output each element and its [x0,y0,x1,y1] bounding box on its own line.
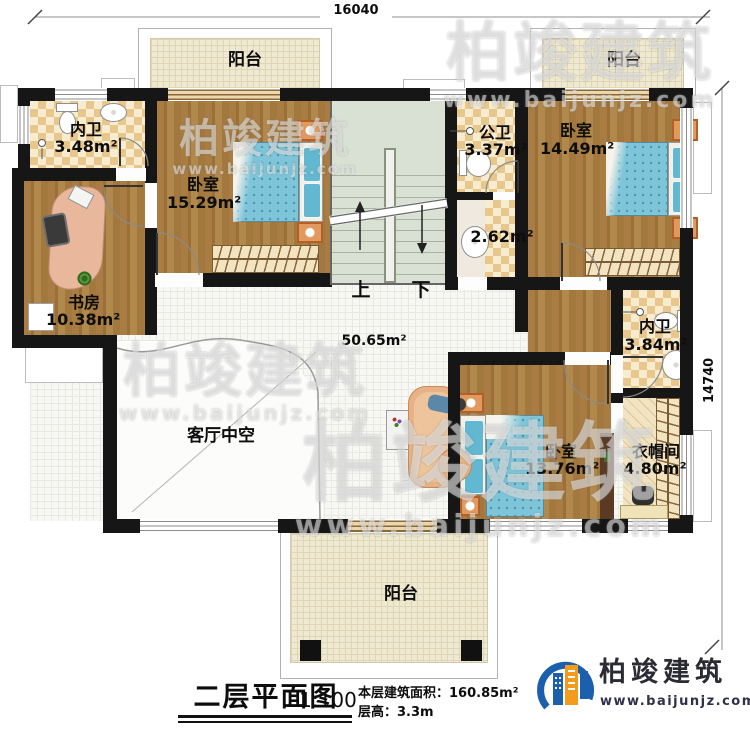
sink-icon [100,103,127,122]
chair [632,486,654,505]
pillow [464,420,484,456]
stair-edge [330,101,332,285]
wall [515,88,528,290]
brand-logo: 柏竣建筑 www.baijunjz.com [535,653,747,725]
door-opening [560,277,607,290]
room-label-balcony-top-right: 阳台 [582,52,666,70]
wall [448,352,460,519]
window [430,88,466,101]
balcony-column [461,640,482,661]
room-area-cloakroom: 4.80m² [619,461,691,478]
room-area-bath-right: 3.84m² [620,337,692,354]
wall [611,388,693,398]
room-area-bath-top-left: 3.48m² [48,139,124,156]
room-area-bedroom-top-left: 15.29m² [167,195,239,212]
window [18,106,30,144]
pillow [303,147,321,182]
dresser-desk [620,505,668,519]
room-area-hall: 50.65m² [338,334,410,349]
wall [12,168,24,348]
wardrobe [212,245,319,273]
window [680,108,693,228]
dimension-top: 16040 [320,4,392,18]
door-opening [611,355,623,393]
nightstand [297,222,323,243]
floor-height-note: 层高：3.3m [358,706,528,720]
nightstand [460,496,480,516]
plan-scale: 1:100 [296,690,360,711]
room-label-bath-right: 内卫 [623,319,687,336]
sliding-door [348,519,437,533]
flowers-icon [391,416,403,428]
door-opening [565,352,610,365]
wall [515,290,528,332]
wall [445,88,457,290]
door-opening [458,277,487,290]
window [628,519,668,533]
window [140,519,278,533]
window [490,519,582,533]
wall [103,335,117,533]
wardrobe [585,248,680,276]
brand-site: www.baijunjz.com [600,695,748,709]
door-opening [145,183,157,228]
floor-area-note: 本层建筑面积：160.85m² [358,687,528,701]
dimension-right: 14740 [703,345,720,415]
balcony-column [300,640,321,661]
door-opening [611,403,623,433]
brand-name: 柏竣建筑 [599,659,747,687]
brand-logo-icon [535,657,597,719]
wall [457,192,493,200]
plant-icon [76,270,93,287]
stair-down-label: 下 [410,281,432,301]
room-area-study: 10.38m² [46,312,118,329]
floor-plan: 16040 14740 阳台 阳台 阳台 内卫 3.48m² 卧室 15.29m… [0,0,750,732]
door-opening [116,168,146,181]
title-underline [178,721,352,723]
sliding-door [565,88,649,101]
stair-railing [384,148,396,283]
room-label-balcony-top-left: 阳台 [203,52,287,70]
door-opening [493,192,515,200]
window-sill [693,102,712,194]
room-label-balcony-bottom: 阳台 [359,586,443,604]
stair-up-label: 上 [350,281,372,301]
room-area-bedroom-top-right: 14.49m² [540,141,612,158]
door-opening [155,273,203,287]
window-sill [0,85,18,143]
wall [445,277,458,290]
corridor [528,290,611,352]
room-area-bedroom-bottom: 13.76m² [525,461,597,478]
title-underline [178,715,352,718]
room-label-bedroom-top-left: 卧室 [171,177,235,194]
room-label-bedroom-top-right: 卧室 [544,123,608,140]
window [55,88,107,101]
bed-fold [486,415,544,439]
room-area-public-bath: 3.37m² [460,142,532,159]
room-area-washroom: 2.62m² [466,229,538,246]
wall [487,277,515,290]
light-icon [636,308,644,316]
wall [12,335,117,348]
pillow [303,183,321,218]
sliding-door [168,88,280,101]
room-label-living-void: 客厅中空 [176,428,266,446]
light-icon [38,139,46,147]
nightstand [297,120,323,141]
